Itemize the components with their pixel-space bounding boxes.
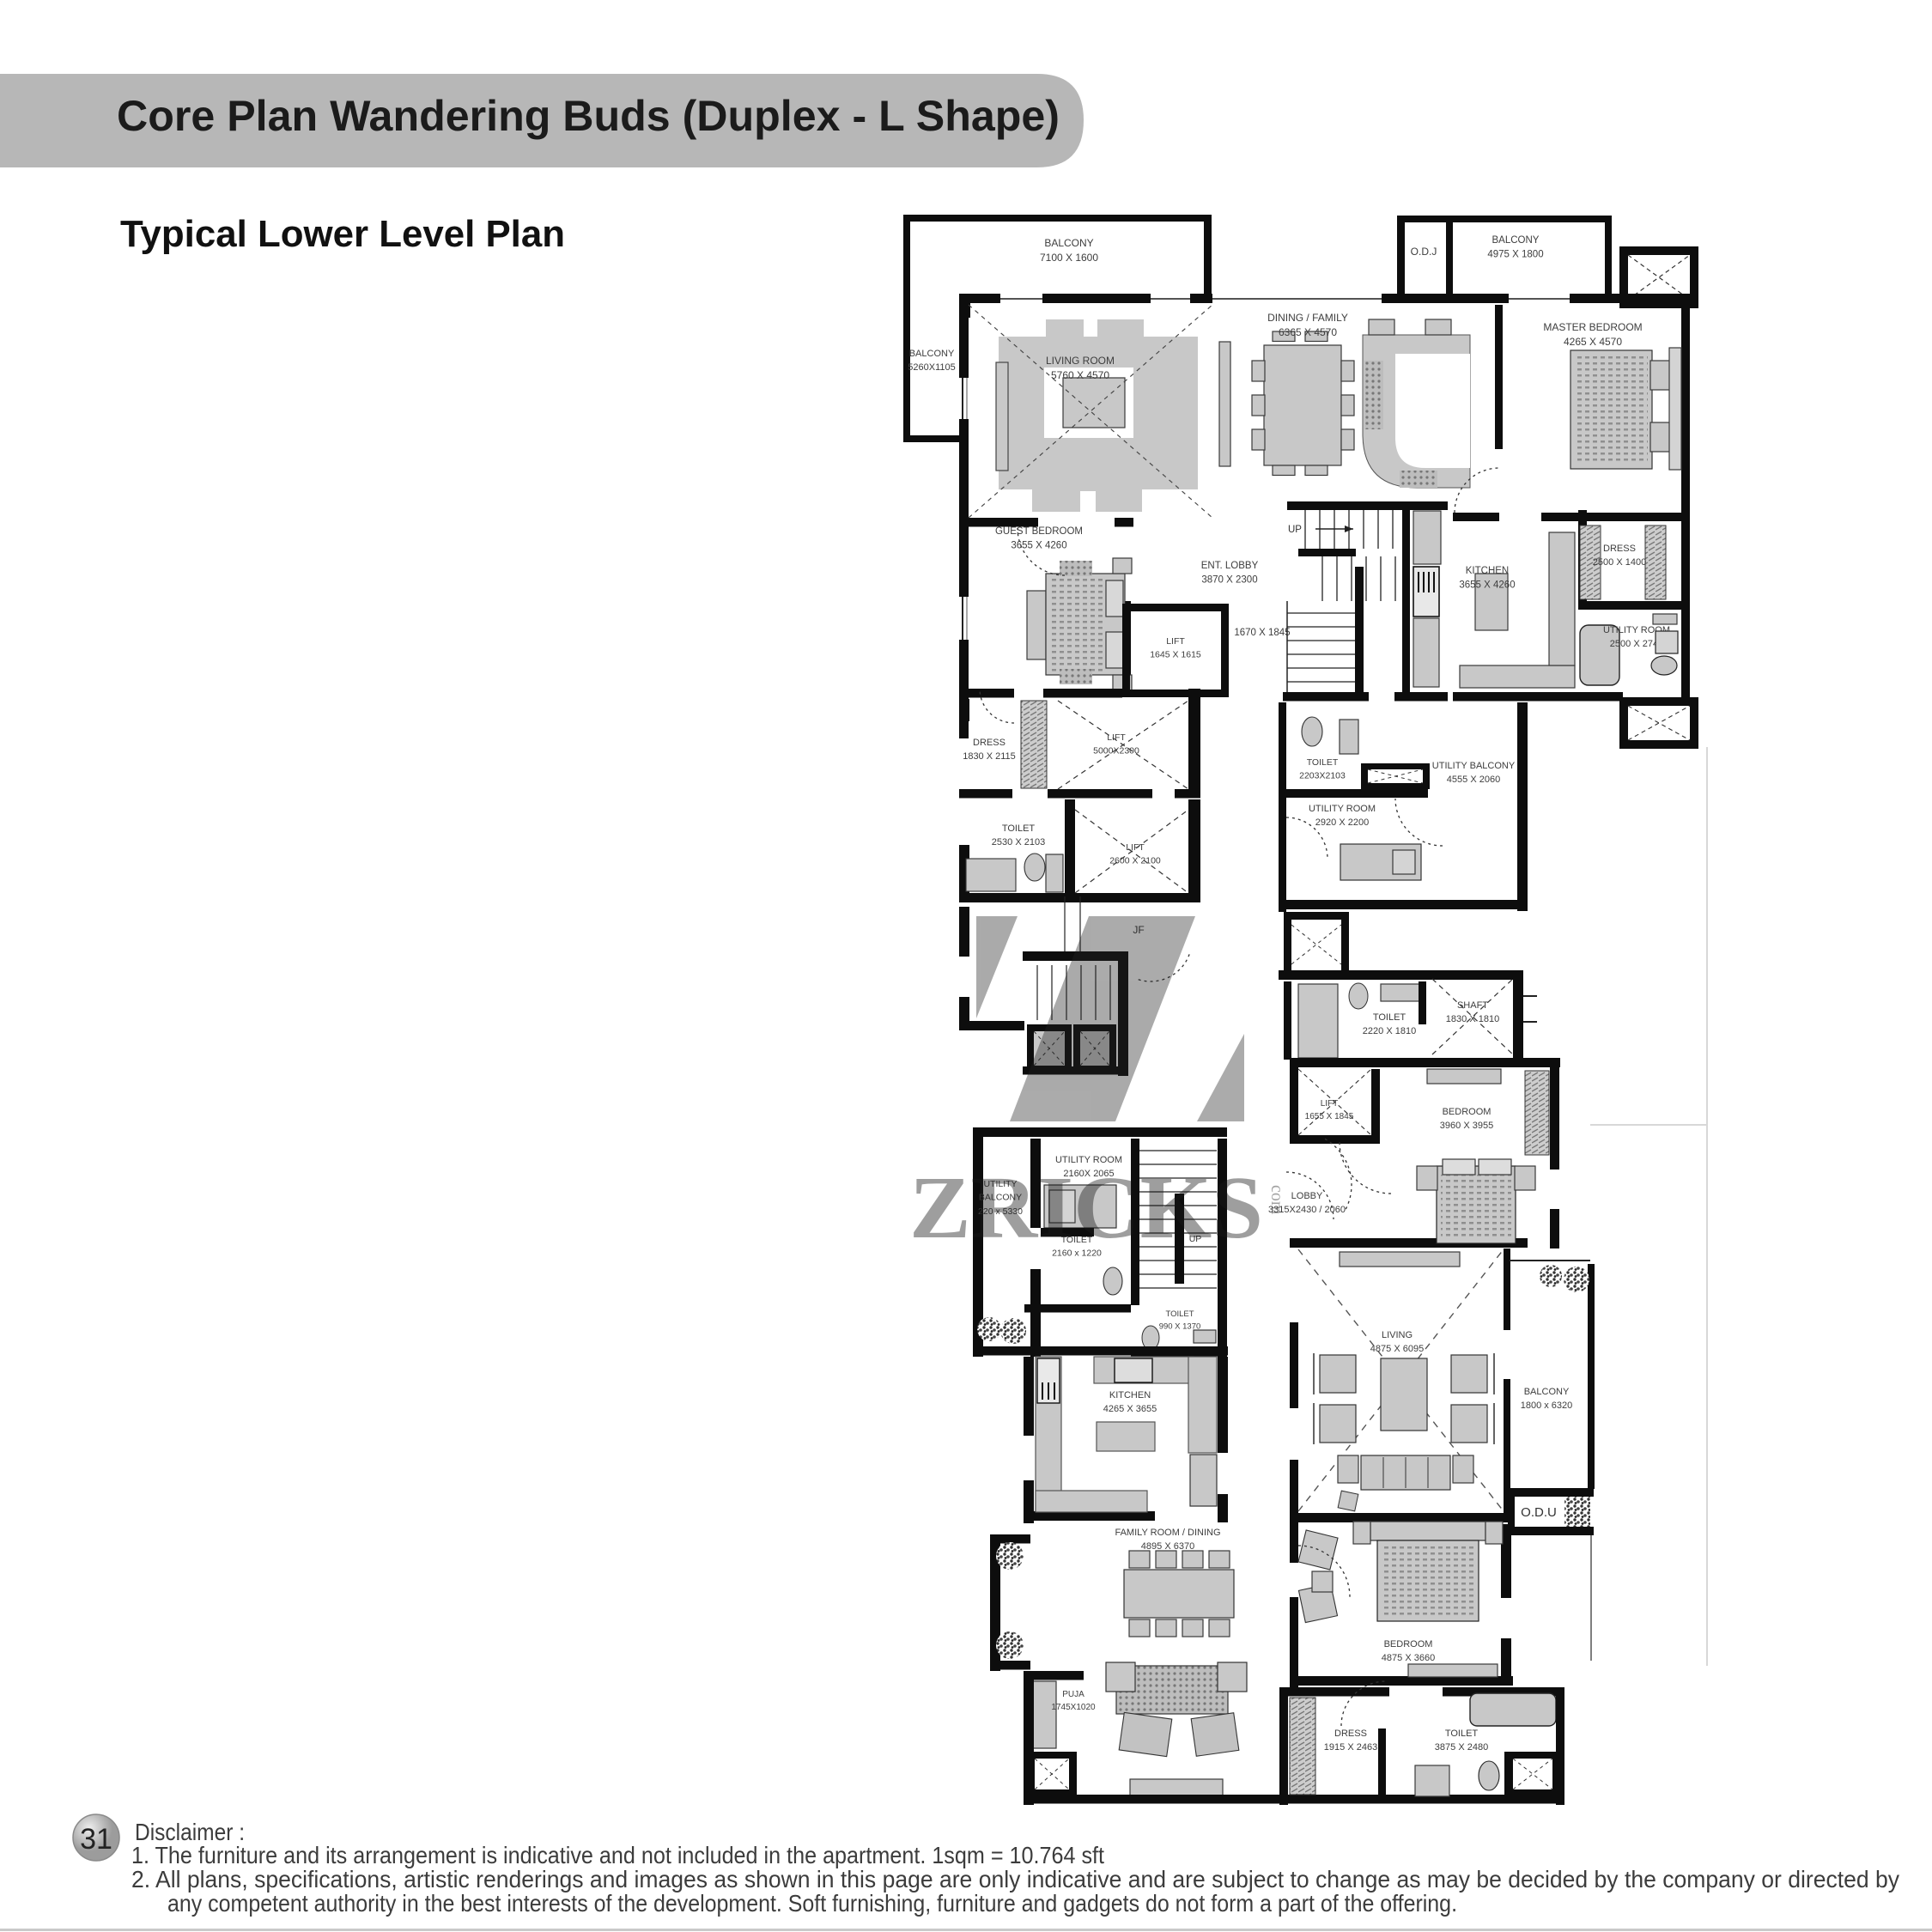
svg-text:4895 X 6370: 4895 X 6370 [1141,1541,1194,1552]
svg-text:LIVING ROOM: LIVING ROOM [1046,355,1115,367]
svg-text:2203X2103: 2203X2103 [1299,771,1346,781]
svg-text:4265 X 3655: 4265 X 3655 [1103,1404,1157,1414]
svg-text:UP: UP [1288,525,1302,535]
svg-text:DINING / FAMILY: DINING / FAMILY [1267,312,1348,324]
svg-text:O.D.J: O.D.J [1411,246,1437,258]
svg-text:3655 X 4260: 3655 X 4260 [1459,580,1515,591]
svg-text:3875 X 2480: 3875 X 2480 [1435,1742,1488,1753]
svg-text:TOILET: TOILET [1165,1309,1194,1319]
svg-text:4975 X 1800: 4975 X 1800 [1487,250,1543,260]
svg-text:FAMILY ROOM / DINING: FAMILY ROOM / DINING [1115,1528,1220,1538]
svg-text:DRESS: DRESS [1603,544,1636,554]
svg-text:5260X1105: 5260X1105 [908,362,955,373]
svg-text:1915 X 2463: 1915 X 2463 [1324,1742,1377,1753]
svg-text:2500 X 1400: 2500 X 1400 [1593,557,1646,568]
svg-text:3655 X 4260: 3655 X 4260 [1011,541,1066,551]
svg-text:BEDROOM: BEDROOM [1443,1107,1492,1117]
svg-text:1830 X 2115: 1830 X 2115 [963,751,1016,762]
svg-text:BALCONY: BALCONY [1492,235,1540,246]
svg-text:3870 X 2300: 3870 X 2300 [1201,575,1257,586]
svg-text:LIFT: LIFT [1107,732,1126,743]
svg-text:LIVING: LIVING [1382,1330,1413,1340]
svg-text:990 X 1370: 990 X 1370 [1159,1322,1201,1332]
svg-text:7100 X 1600: 7100 X 1600 [1040,252,1098,264]
svg-text:5000X2300: 5000X2300 [1093,746,1139,756]
svg-text:PUJA: PUJA [1062,1690,1084,1699]
svg-text:SHAFT: SHAFT [1457,1000,1488,1011]
svg-text:2220 X 1810: 2220 X 1810 [1363,1026,1416,1036]
svg-text:UTILITY ROOM: UTILITY ROOM [1309,804,1376,814]
svg-text:BEDROOM: BEDROOM [1384,1639,1433,1649]
svg-text:4265 X 4570: 4265 X 4570 [1564,336,1622,348]
svg-text:1. The furniture and its arran: 1. The furniture and its arrangement is … [131,1842,1104,1868]
svg-text:any competent authority in the: any competent authority in the best inte… [167,1890,1457,1917]
svg-text:KITCHEN: KITCHEN [1466,566,1509,576]
svg-text:TOILET: TOILET [1002,823,1036,834]
svg-text:LIFT: LIFT [1126,842,1145,853]
svg-text:ENT. LOBBY: ENT. LOBBY [1201,561,1259,571]
svg-text:1800 x 6320: 1800 x 6320 [1521,1400,1573,1411]
svg-text:2. All plans, specifications,: 2. All plans, specifications, artistic r… [131,1866,1899,1893]
svg-text:BALCONY: BALCONY [909,349,955,359]
svg-text:1830 X 1810: 1830 X 1810 [1446,1014,1499,1024]
svg-text:31: 31 [80,1823,112,1856]
svg-text:4875 X 6095: 4875 X 6095 [1370,1344,1424,1354]
svg-text:3960 X 3955: 3960 X 3955 [1440,1121,1493,1131]
svg-text:Typical Lower Level Plan: Typical Lower Level Plan [120,213,565,255]
svg-text:1645 X 1615: 1645 X 1615 [1150,650,1201,660]
svg-text:1745X1020: 1745X1020 [1051,1703,1096,1712]
svg-text:O.D.U: O.D.U [1521,1505,1557,1520]
svg-text:LOBBY: LOBBY [1291,1191,1323,1201]
svg-text:TOILET: TOILET [1445,1728,1479,1739]
svg-text:ZRICKS: ZRICKS [909,1158,1263,1257]
svg-text:4555 X 2060: 4555 X 2060 [1447,775,1500,785]
svg-text:LIFT: LIFT [1166,636,1185,647]
svg-text:BALCONY: BALCONY [1044,237,1093,249]
svg-text:DRESS: DRESS [1334,1728,1367,1739]
svg-text:DRESS: DRESS [973,738,1005,748]
svg-text:MASTER BEDROOM: MASTER BEDROOM [1543,321,1642,333]
svg-text:BALCONY: BALCONY [1524,1387,1570,1397]
svg-text:TOILET: TOILET [1307,757,1339,768]
svg-text:1670 X 1845: 1670 X 1845 [1234,628,1290,638]
svg-text:com: com [1267,1185,1286,1215]
svg-text:KITCHEN: KITCHEN [1109,1390,1151,1400]
svg-text:Core Plan Wandering Buds (Dupl: Core Plan Wandering Buds (Duplex - L Sha… [117,92,1060,140]
svg-text:5760 X 4570: 5760 X 4570 [1051,369,1109,381]
svg-text:GUEST BEDROOM: GUEST BEDROOM [995,526,1083,537]
svg-text:2530 X 2103: 2530 X 2103 [992,837,1045,848]
svg-text:2600 X 2100: 2600 X 2100 [1109,856,1161,866]
svg-text:4875 X 3660: 4875 X 3660 [1382,1653,1435,1663]
svg-text:TOILET: TOILET [1373,1012,1406,1023]
svg-text:2920 X 2200: 2920 X 2200 [1315,817,1369,828]
svg-text:UTILITY BALCONY: UTILITY BALCONY [1432,761,1516,771]
svg-text:6365 X 4570: 6365 X 4570 [1279,326,1337,338]
